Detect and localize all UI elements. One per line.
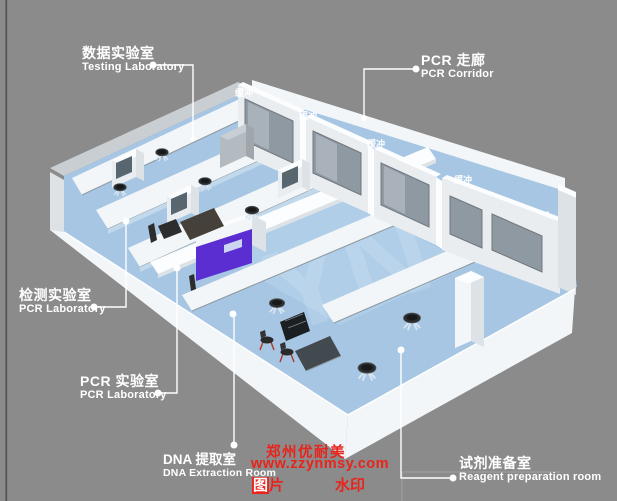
label-corridor-zh: PCR 走廊 xyxy=(421,53,494,68)
label-testing-zh: 数据实验室 xyxy=(82,46,184,61)
leader-dot xyxy=(191,137,196,142)
watermark-tag-left: 图片 xyxy=(252,474,284,495)
lab-floorplan-render: YN xyxy=(0,0,617,501)
watermark-tag-right: 水印 xyxy=(335,474,365,495)
photo-edge-line xyxy=(6,0,8,501)
leader-dot xyxy=(174,265,181,272)
leader-dot xyxy=(398,347,405,354)
buffer-tag-2: 缓冲 xyxy=(299,112,317,121)
label-detection-en: PCR Laboratory xyxy=(19,303,106,315)
leader-dot xyxy=(230,311,237,318)
label-reagent-en: Reagent preparation room xyxy=(459,471,601,483)
label-pcr-zh: PCR 实验室 xyxy=(80,374,167,389)
watermark-tag-rest: 片 xyxy=(269,477,284,494)
leader-dot xyxy=(413,66,420,73)
label-detection-lab: 检测实验室 PCR Laboratory xyxy=(19,288,106,315)
leader-dot xyxy=(123,218,130,225)
label-reagent-room: 试剂准备室 Reagent preparation room xyxy=(459,456,601,483)
label-reagent-zh: 试剂准备室 xyxy=(459,456,601,471)
label-pcr-lab: PCR 实验室 PCR Laboratory xyxy=(80,374,167,401)
label-pcr-en: PCR Laboratory xyxy=(80,389,167,401)
lab-3d-scene: YN xyxy=(0,0,617,501)
leader-dot xyxy=(231,442,238,449)
buffer-tag-4: 缓冲 xyxy=(454,176,472,185)
label-testing-lab: 数据实验室 Testing Laboratory xyxy=(82,46,184,73)
label-pcr-corridor: PCR 走廊 PCR Corridor xyxy=(421,53,494,80)
leader-corridor xyxy=(364,69,416,118)
label-detection-zh: 检测实验室 xyxy=(19,288,106,303)
watermark-tag-boxed: 图 xyxy=(252,477,269,494)
buffer-tag-1: 缓冲 xyxy=(235,89,253,98)
leader-dot xyxy=(450,475,457,482)
refrigerator-column xyxy=(455,271,484,348)
watermark-url: www.zzynmsy.com xyxy=(251,456,389,472)
label-corridor-en: PCR Corridor xyxy=(421,68,494,80)
buffer-tag-3: 缓冲 xyxy=(367,140,385,149)
label-testing-en: Testing Laboratory xyxy=(82,61,184,73)
leader-dot xyxy=(361,115,367,121)
